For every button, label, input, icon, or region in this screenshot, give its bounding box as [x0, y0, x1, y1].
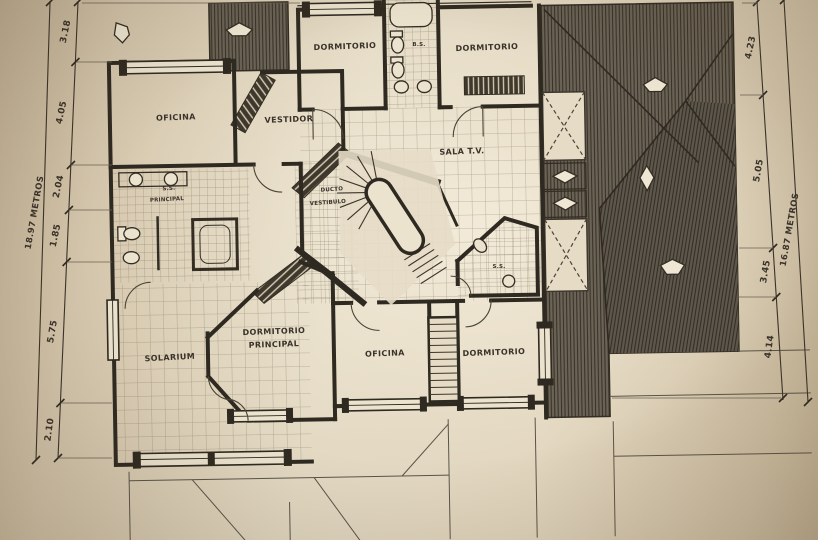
sink: [394, 81, 408, 93]
dim-label: 2.10: [43, 417, 56, 442]
sink: [129, 173, 142, 186]
bidet: [123, 252, 139, 264]
label-dormitorio-top-right: DORMITORIO: [455, 42, 518, 53]
label-vestidor: VESTIDOR: [264, 114, 313, 125]
dormitorio-closet-band: [464, 76, 524, 95]
window: [107, 300, 119, 360]
sink: [417, 80, 431, 92]
sink: [164, 172, 177, 185]
dim-label: 1.85: [49, 223, 64, 248]
dim-label: 2.04: [52, 174, 67, 199]
label-oficina-bottom: OFICINA: [365, 348, 405, 358]
dim-label: 3.18: [59, 19, 74, 44]
bathtub: [390, 2, 432, 27]
window: [342, 397, 427, 413]
stair-straight: [428, 317, 458, 401]
window: [227, 408, 293, 424]
label-dormitorio-principal-2: PRINCIPAL: [248, 339, 299, 350]
dim-label: 4.23: [744, 35, 759, 60]
dim-ticks: [753, 0, 812, 406]
sink: [503, 275, 515, 287]
toilet-tank: [390, 31, 402, 37]
dim-label: 4.14: [763, 334, 776, 359]
label-ss-banio: S.S.: [493, 264, 506, 270]
dim-label: 4.05: [55, 100, 70, 125]
floor-plan-drawing: 3.18 4.05 2.04 1.85 5.75 2.10 18.97 METR…: [0, 0, 818, 540]
solarium-tiles: [113, 282, 312, 465]
dim-label: 3.45: [759, 259, 773, 284]
dim-total-line: [36, 2, 50, 460]
label-dormitorio-top-left: DORMITORIO: [313, 41, 376, 52]
door-arc: [465, 300, 491, 326]
label-ss-principal-1: S.S.: [162, 186, 175, 193]
roof-skylights: [542, 92, 587, 292]
toilet: [392, 62, 404, 78]
window: [457, 395, 535, 411]
door-arc: [351, 302, 379, 330]
door-arc: [254, 164, 282, 192]
floor-plan-photo: 3.18 4.05 2.04 1.85 5.75 2.10 18.97 METR…: [0, 0, 818, 540]
toilet: [124, 228, 140, 240]
roof-vent-icon: [114, 23, 129, 43]
label-sala-tv: SALA T.V.: [439, 146, 484, 157]
bath-divider: [158, 216, 159, 270]
label-banio-superior: B.S.: [412, 42, 425, 48]
window: [536, 321, 553, 385]
dim-label: 5.05: [752, 158, 766, 183]
toilet: [391, 37, 403, 53]
label-dormitorio-bottom: DORMITORIO: [462, 347, 525, 358]
skylight-icon: [542, 92, 585, 161]
dim-label: 5.75: [46, 319, 60, 344]
label-oficina-top: OFICINA: [156, 112, 196, 122]
window: [302, 0, 382, 17]
